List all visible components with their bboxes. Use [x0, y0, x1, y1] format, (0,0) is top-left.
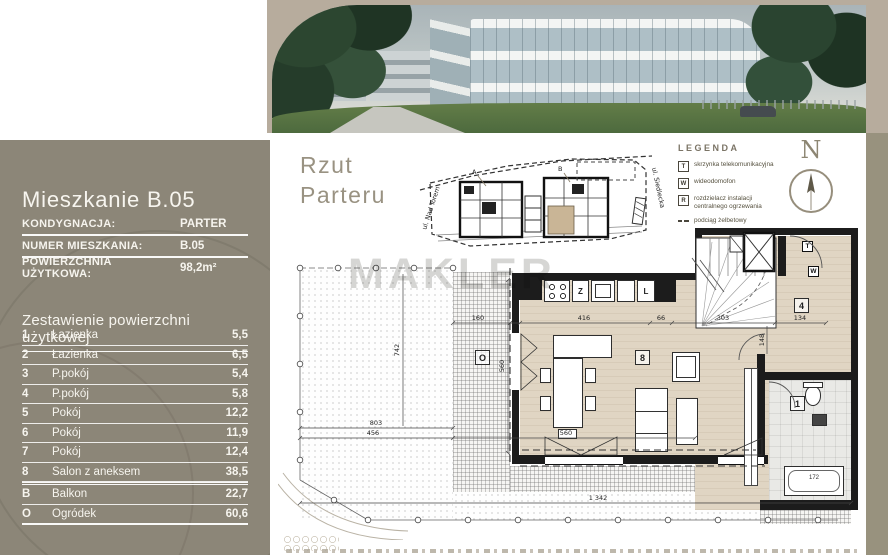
dim-560-bottom: 560	[560, 429, 572, 437]
detail-row: POWIERZCHNIA UŻYTKOWA: 98,2m²	[22, 258, 248, 278]
dim-1342: 1 342	[589, 494, 608, 502]
room-name: Balkon	[52, 488, 226, 500]
room-name: P.pokój	[52, 368, 232, 380]
window-symbols	[521, 334, 762, 455]
room-area: 12,2	[226, 407, 248, 419]
room-name: Pokój	[52, 446, 226, 458]
legend-item: R rozdzielacz instalacji centralnego ogr…	[678, 195, 778, 211]
row-index: 4	[22, 388, 52, 400]
right-side-strip	[866, 0, 888, 555]
legend-item-text: skrzynka telekomunikacyjna	[694, 161, 774, 169]
area-table: 1Łazienka5,5 2Łazienka6,5 3P.pokój5,4 4P…	[22, 326, 248, 525]
room-name: Łazienka	[52, 349, 232, 361]
dim-66: 66	[657, 314, 665, 322]
compass: N	[783, 138, 839, 220]
row-index: O	[22, 508, 52, 520]
dim-803: 803	[370, 419, 382, 427]
table-row: 1Łazienka5,5	[22, 326, 248, 346]
dim-416: 416	[578, 314, 590, 322]
fence	[702, 100, 862, 109]
dim-742: 742	[393, 344, 401, 356]
row-index: 1	[22, 329, 52, 341]
room-name: P.pokój	[52, 388, 232, 400]
table-row: OOgródek60,6	[22, 505, 248, 526]
building-photo	[272, 5, 866, 133]
legend: LEGENDA T skrzynka telekomunikacyjna W w…	[678, 143, 778, 231]
plan-heading-line2: Parteru	[300, 182, 386, 208]
car	[740, 106, 776, 117]
legend-item-text: wideodomofon	[694, 178, 736, 186]
row-index: 3	[22, 368, 52, 380]
legend-title: LEGENDA	[678, 143, 778, 153]
apartment-title: Mieszkanie B.05	[22, 187, 195, 213]
plan-heading: Rzut Parteru	[300, 150, 386, 210]
sidebar: Mieszkanie B.05 KONDYGNACJA: PARTER NUME…	[0, 140, 270, 555]
room-area: 5,4	[232, 368, 248, 380]
room-area: 22,7	[226, 488, 248, 500]
detail-label: NUMER MIESZKANIA:	[22, 240, 180, 252]
room-area: 12,4	[226, 446, 248, 458]
room-name: Łazienka	[52, 329, 232, 341]
table-row: 7Pokój12,4	[22, 443, 248, 463]
bike-shed	[632, 197, 646, 224]
detail-value: PARTER	[180, 218, 226, 230]
room-name: Ogródek	[52, 508, 226, 520]
terrain-contours	[278, 473, 408, 540]
table-row: 2Łazienka6,5	[22, 346, 248, 366]
compass-rose	[783, 162, 839, 218]
room-area: 38,5	[226, 466, 248, 478]
row-index: 8	[22, 466, 52, 478]
row-index: 2	[22, 349, 52, 361]
dim-134: 134	[794, 314, 806, 322]
room-name: Pokój	[52, 427, 226, 439]
row-index: 6	[22, 427, 52, 439]
building-a-label: A	[472, 168, 477, 176]
room-area: 5,5	[232, 329, 248, 341]
dim-160: 160	[472, 314, 484, 322]
detail-value: B.05	[180, 240, 204, 252]
dim-456: 456	[367, 429, 379, 437]
compass-north-label: N	[783, 138, 839, 162]
beam-dash-symbol	[678, 220, 689, 222]
room-area: 5,8	[232, 388, 248, 400]
tree-right	[734, 5, 866, 115]
legend-item-text: podciąg żelbetowy	[694, 217, 747, 225]
row-index: 7	[22, 446, 52, 458]
stair-core	[525, 196, 541, 232]
brochure-page: Mieszkanie B.05 KONDYGNACJA: PARTER NUME…	[0, 0, 888, 555]
row-index: B	[22, 488, 52, 500]
table-row: 8Salon z aneksem38,5	[22, 463, 248, 483]
legend-item: podciąg żelbetowy	[678, 217, 778, 225]
detail-row: KONDYGNACJA: PARTER	[22, 214, 248, 236]
dim-148: 148	[758, 334, 766, 346]
table-row: 6Pokój11,9	[22, 424, 248, 444]
room-area: 6,5	[232, 349, 248, 361]
detail-label: POWIERZCHNIA UŻYTKOWA:	[22, 256, 180, 280]
building-b-label: B	[558, 165, 562, 173]
table-row: BBalkon22,7	[22, 482, 248, 505]
tele-box-symbol: T	[678, 161, 689, 172]
table-row: 3P.pokój5,4	[22, 365, 248, 385]
legend-item: T skrzynka telekomunikacyjna	[678, 161, 778, 172]
dim-303: 303	[717, 314, 729, 322]
room-name: Salon z aneksem	[52, 466, 226, 478]
detail-value: 98,2m²	[180, 262, 216, 274]
clipped-caption-line	[286, 549, 860, 553]
heating-manifold-symbol: R	[678, 195, 689, 206]
apartment-details: KONDYGNACJA: PARTER NUMER MIESZKANIA: B.…	[22, 214, 248, 278]
street-right-label: ul. Siedlecka	[650, 167, 664, 209]
detail-row: NUMER MIESZKANIA: B.05	[22, 236, 248, 258]
room-area: 60,6	[226, 508, 248, 520]
room-area: 11,9	[226, 427, 248, 439]
table-row: 4P.pokój5,8	[22, 385, 248, 405]
row-index: 5	[22, 407, 52, 419]
plan-heading-line1: Rzut	[300, 152, 353, 178]
legend-item-text: rozdzielacz instalacji centralnego ogrze…	[694, 195, 778, 211]
street-left-label: ul. Nad Torem	[420, 186, 441, 231]
detail-label: KONDYGNACJA:	[22, 218, 180, 230]
room-name: Pokój	[52, 407, 226, 419]
legend-item: W wideodomofon	[678, 178, 778, 189]
dimension-labels: 160 416 66 303 134 560 742 803 456 560 1…	[367, 314, 806, 502]
dim-560-vert: 560	[498, 360, 506, 372]
intercom-symbol: W	[678, 178, 689, 189]
table-row: 5Pokój12,2	[22, 404, 248, 424]
tree-left	[272, 5, 424, 118]
makler-watermark: MAKLER	[348, 250, 556, 299]
